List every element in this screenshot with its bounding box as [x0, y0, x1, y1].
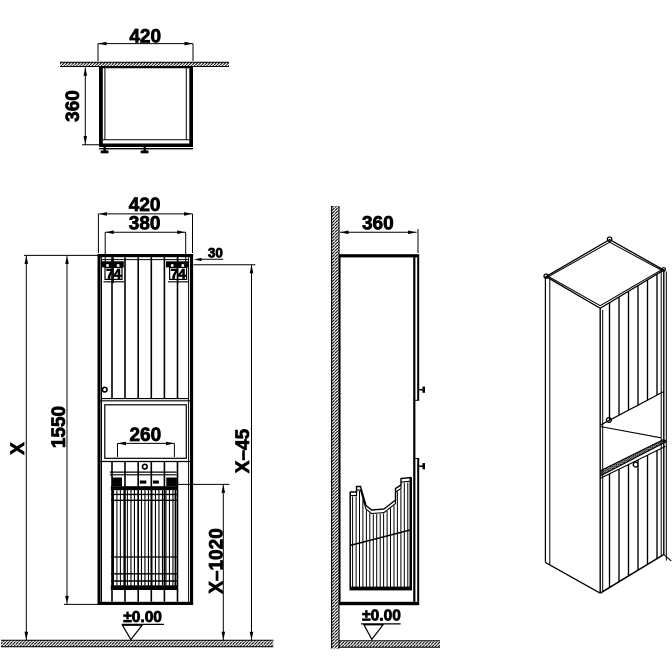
svg-text:420: 420 — [129, 27, 161, 48]
svg-text:260: 260 — [129, 425, 161, 446]
svg-text:380: 380 — [129, 214, 161, 235]
svg-text:X: X — [8, 442, 29, 455]
svg-text:X–45: X–45 — [233, 428, 254, 473]
svg-text:±0.00: ±0.00 — [362, 607, 401, 624]
svg-text:360: 360 — [362, 213, 394, 234]
svg-text:±0.00: ±0.00 — [123, 609, 162, 626]
svg-text:30: 30 — [208, 245, 223, 260]
svg-text:360: 360 — [63, 90, 84, 122]
svg-text:1550: 1550 — [49, 406, 70, 448]
svg-text:X–1020: X–1020 — [206, 528, 227, 594]
